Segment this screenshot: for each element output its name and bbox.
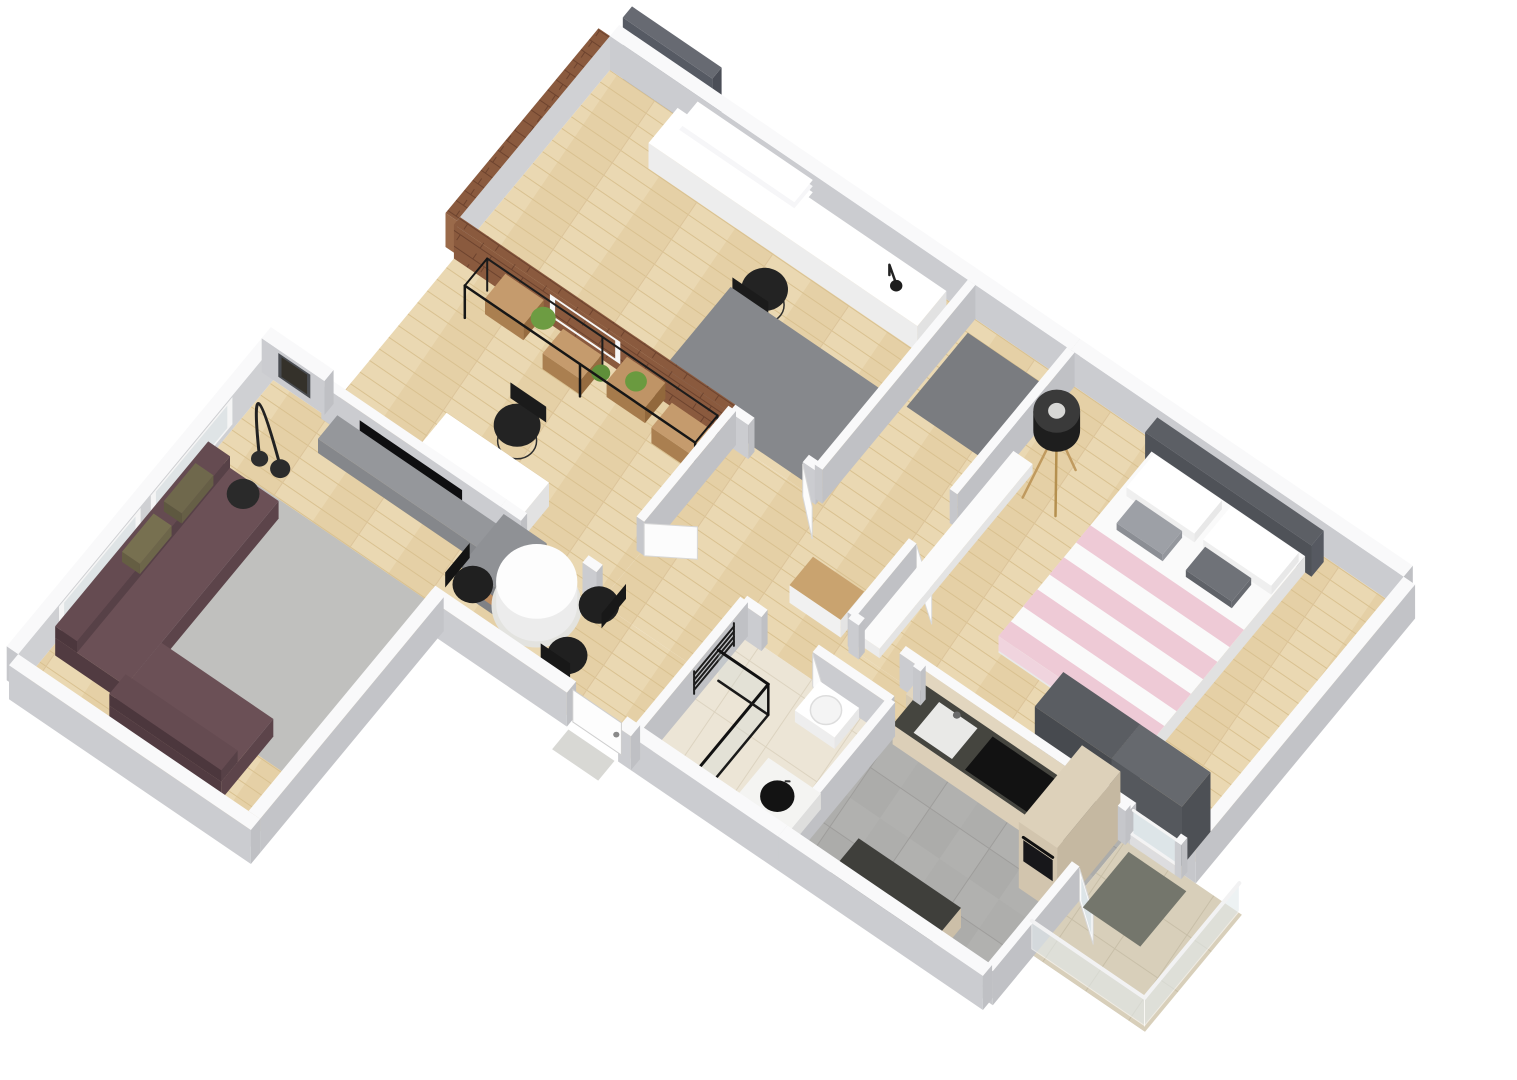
sofa-round-pillow	[227, 479, 260, 509]
kitchen-faucet	[953, 712, 961, 719]
wall-kitchen-east-stub-east	[1125, 805, 1130, 845]
shelving-plant-3	[625, 371, 647, 391]
wall-study-east-south	[637, 517, 645, 556]
wall-bath-kitchen-stub-south	[913, 666, 921, 705]
wall-kitchen-east-stub-south	[1118, 806, 1126, 845]
office-desk-lamp-head	[890, 280, 902, 292]
toilet-lid	[810, 696, 841, 725]
dining-chair-3-seat	[453, 566, 494, 603]
study-door-leaf	[644, 524, 697, 560]
wall-bath-kitchen-stub-east	[921, 665, 926, 705]
bath-sink	[760, 780, 794, 812]
wall-bedroom-south-right-south	[1175, 841, 1181, 879]
shelving-plant-1	[531, 307, 556, 330]
wall-bedroom-south-left-south	[848, 619, 858, 660]
arc-lamp-base	[251, 451, 268, 467]
dining-table-top	[496, 544, 577, 619]
arc-lamp-shade	[270, 459, 290, 478]
wall-office-east-south	[815, 465, 823, 504]
bedroom-lamp-bulb	[1048, 403, 1065, 419]
floorplan-viewport	[0, 0, 1517, 1080]
entrance-door-handle	[613, 732, 619, 738]
floorplan-3d-render	[0, 0, 1517, 1080]
